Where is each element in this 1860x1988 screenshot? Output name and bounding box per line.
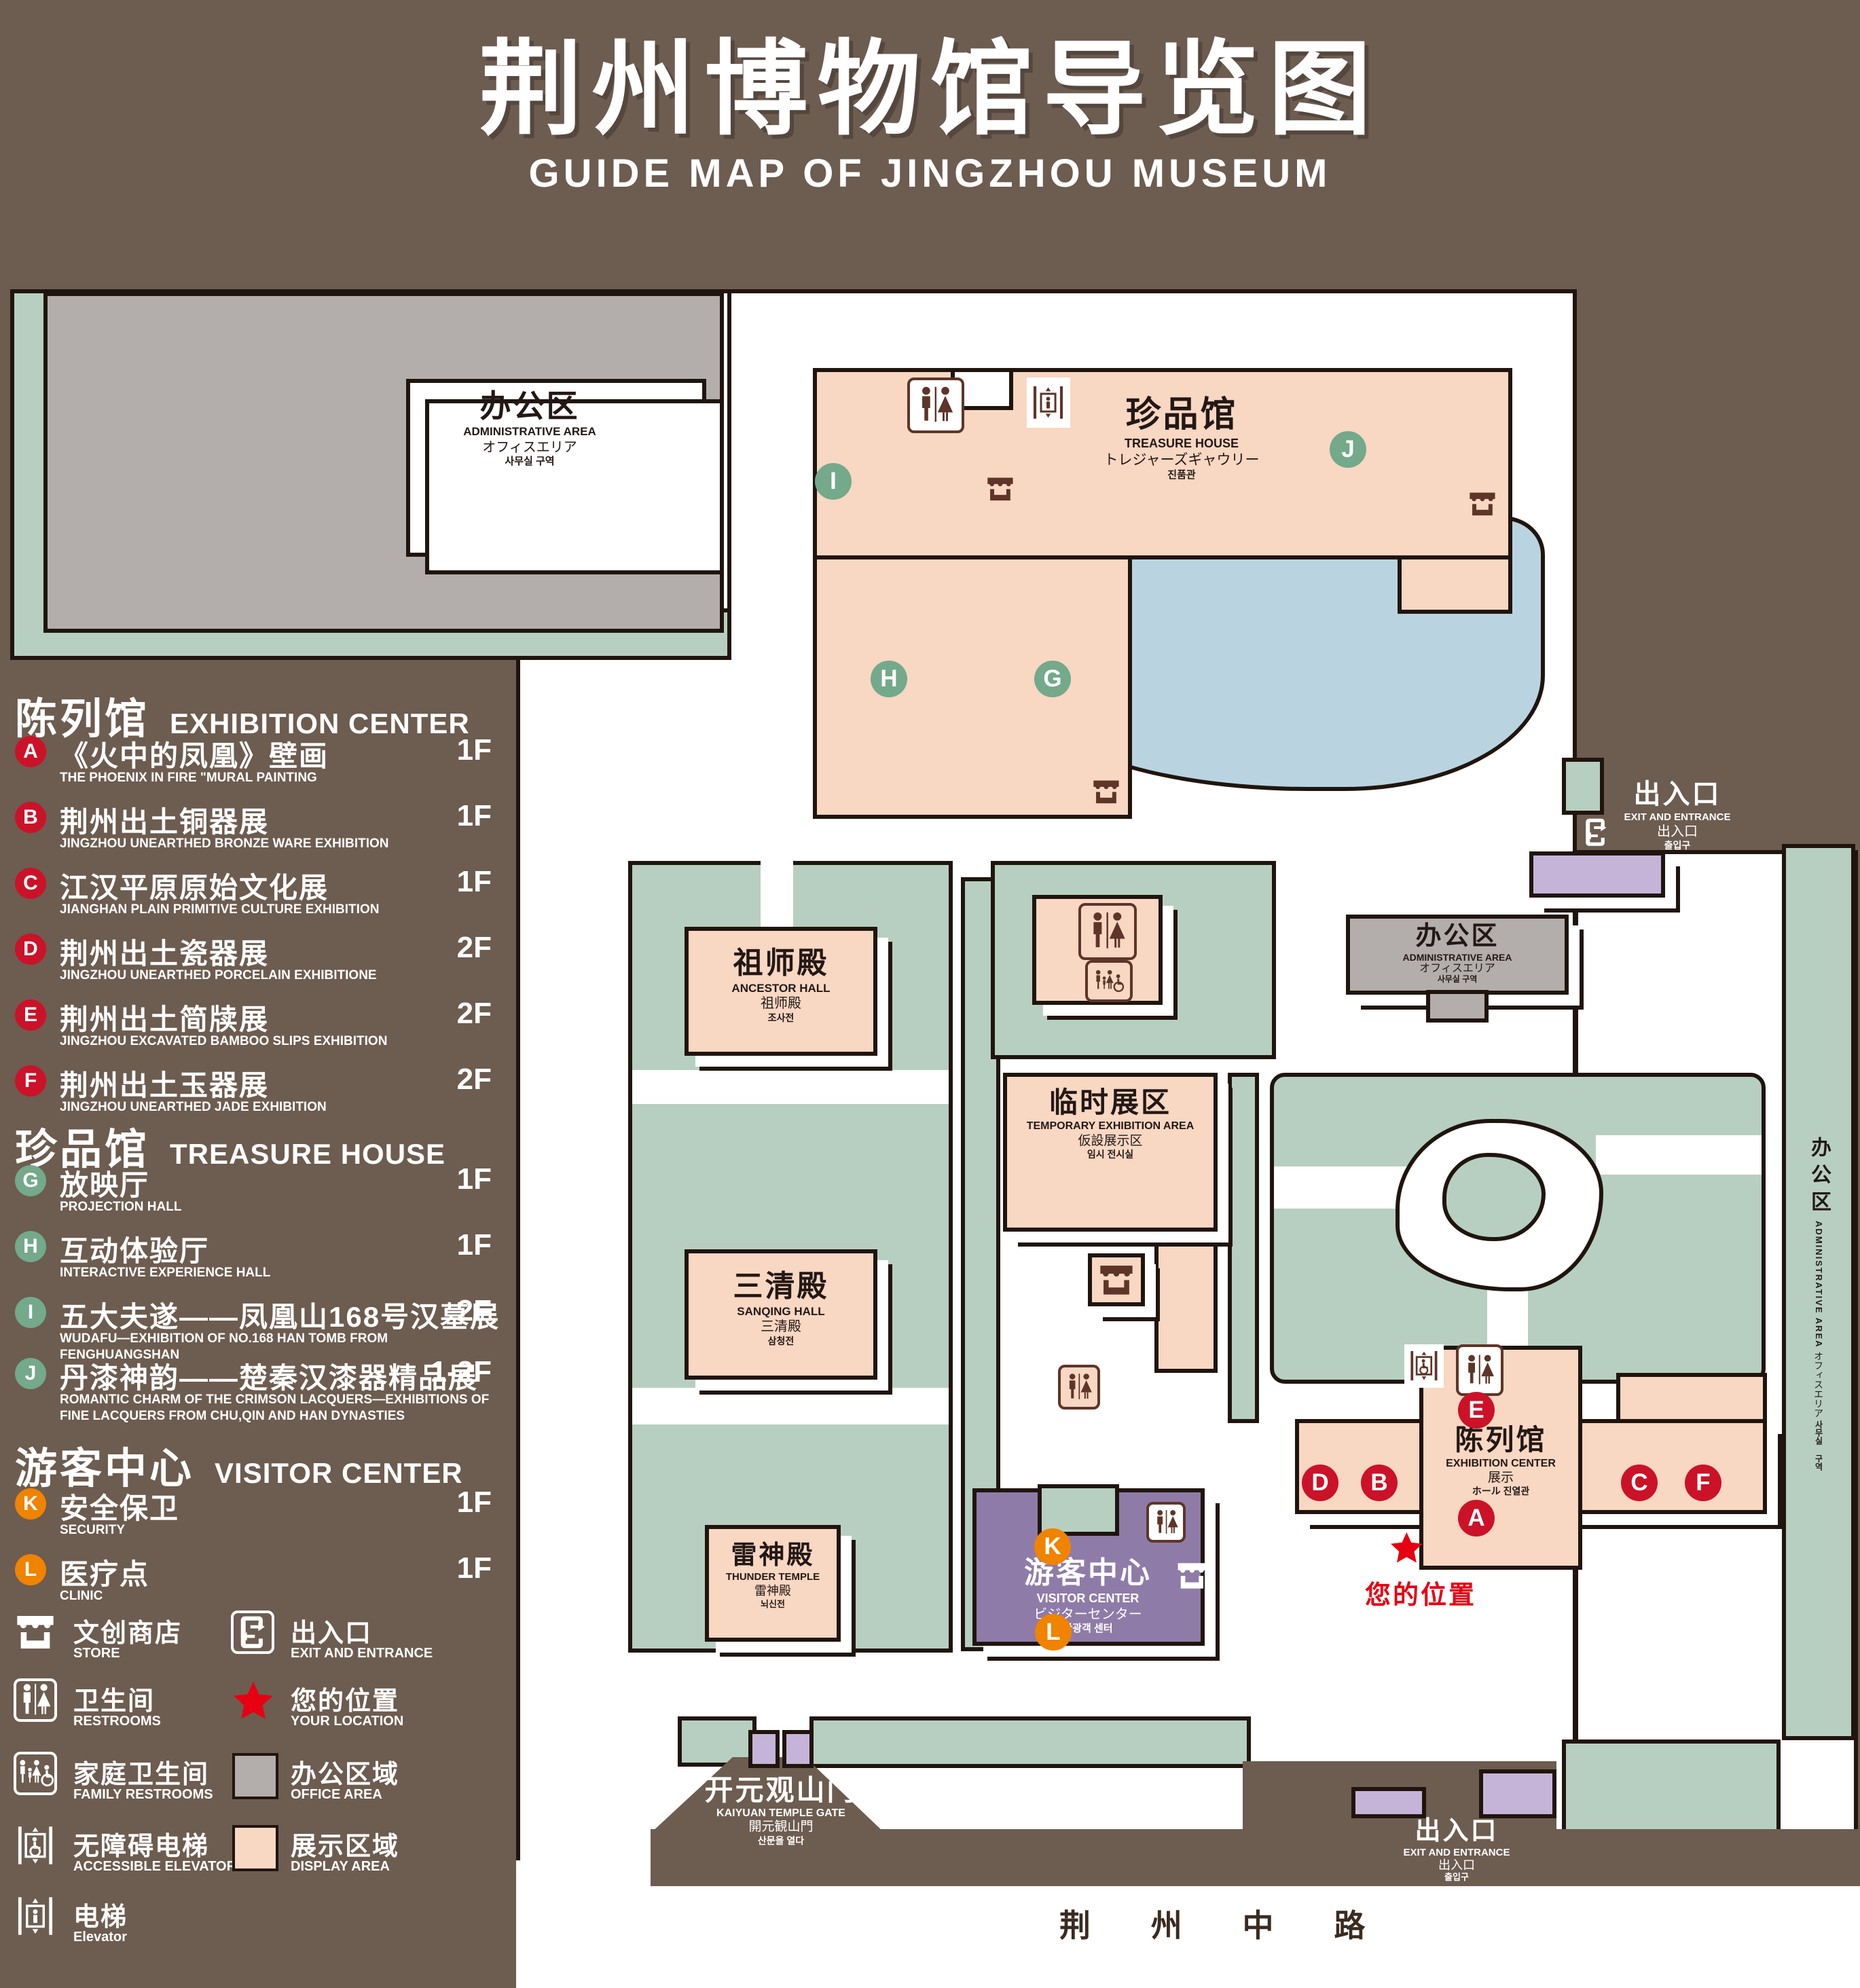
floor-label: 2F bbox=[457, 997, 492, 1031]
legend-badge-A: A bbox=[15, 736, 46, 767]
floor-label: 1-2F bbox=[431, 1355, 492, 1389]
wc-icon bbox=[1058, 1365, 1100, 1410]
map-marker-L[interactable]: L bbox=[1035, 1614, 1072, 1651]
wc-icon bbox=[1146, 1502, 1186, 1543]
exit-icon bbox=[1577, 812, 1615, 853]
legend-badge-F: F bbox=[15, 1065, 46, 1097]
temporary-exhibition-wing bbox=[1154, 1228, 1218, 1373]
floor-label: 2F bbox=[457, 931, 492, 965]
map-marker-K[interactable]: K bbox=[1034, 1528, 1071, 1565]
store-icon bbox=[1463, 486, 1502, 521]
legend-item-G[interactable]: G放映厅1FPROJECTION HALL bbox=[15, 1165, 504, 1230]
page-subtitle: GUIDE MAP OF JINGZHOU MUSEUM bbox=[0, 151, 1860, 196]
floor-label: 1F bbox=[457, 799, 492, 833]
visitor-center-label: 游客中心 VISITOR CENTER ビジターセンター 관광객 센터 bbox=[986, 1555, 1190, 1635]
legend-badge-K: K bbox=[15, 1488, 46, 1520]
road-name: 荆 州 中 路 bbox=[1059, 1901, 1391, 1946]
floor-label: 1F bbox=[457, 1551, 492, 1585]
admin-top-label: 办公区 ADMINISTRATIVE AREA オフィスエリア 사무실 구역 bbox=[380, 387, 679, 468]
store-icon bbox=[981, 471, 1020, 507]
halls-path-2 bbox=[632, 1388, 949, 1424]
map-marker-D[interactable]: D bbox=[1302, 1465, 1338, 1501]
treasure-house-step bbox=[1398, 551, 1512, 614]
floor-label: 1F bbox=[457, 865, 492, 899]
legend-badge-I: I bbox=[15, 1297, 46, 1328]
gate-pillar-right bbox=[782, 1730, 814, 1768]
temporary-exhibition-label: 临时展区 TEMPORARY EXHIBITION AREA 仮設展示区 임시 … bbox=[1003, 1085, 1218, 1160]
thunder-temple-label: 雷神殿 THUNDER TEMPLE 雷神殿 뇌신전 bbox=[691, 1540, 854, 1609]
exhibition-center-label: 陈列馆 EXHIBITION CENTER 展示 ホール 진열관 bbox=[1419, 1423, 1582, 1497]
your-location-text: 您的位置 bbox=[1365, 1574, 1476, 1611]
legend-item-K[interactable]: K安全保卫1FSECURITY bbox=[15, 1488, 504, 1553]
family-icon bbox=[1085, 960, 1133, 1002]
floor-label: 2F bbox=[457, 1294, 492, 1328]
legend-elev-row: 电梯Elevator bbox=[14, 1894, 217, 1955]
map-marker-B[interactable]: B bbox=[1361, 1465, 1398, 1501]
store-icon bbox=[1088, 1253, 1145, 1306]
halls-path-top bbox=[761, 857, 793, 929]
treasure-house-label: 珍品馆 TREASURE HOUSE トレジャーズギャウリー 진품관 bbox=[1046, 394, 1317, 481]
admin-strip-label: 办公区 ADMINISTRATIVE AREA オフィスエリア 사무실 구역 bbox=[1782, 1032, 1855, 1575]
store-icon bbox=[1087, 774, 1126, 809]
legend-item-C[interactable]: C江汉平原原始文化展1FJIANGHAN PLAIN PRIMITIVE CUL… bbox=[15, 868, 504, 933]
legend-accelev-row: 无障碍电梯ACCESSIBLE ELEVATOR bbox=[14, 1824, 217, 1885]
map-marker-F[interactable]: F bbox=[1685, 1465, 1721, 1501]
legend-item-F[interactable]: F荆州出土玉器展2FJINGZHOU UNEARTHED JADE EXHIBI… bbox=[15, 1065, 504, 1130]
map-marker-G[interactable]: G bbox=[1034, 661, 1071, 697]
legend-badge-J: J bbox=[15, 1358, 46, 1389]
floor-label: 1F bbox=[457, 1228, 492, 1262]
floor-label: 2F bbox=[457, 1063, 492, 1097]
legend-badge-D: D bbox=[15, 934, 46, 965]
legend-item-H[interactable]: H互动体验厅1FINTERACTIVE EXPERIENCE HALL bbox=[15, 1231, 504, 1296]
legend-star-row: 您的位置YOUR LOCATION bbox=[231, 1678, 448, 1739]
exhibition-center-right bbox=[1616, 1373, 1767, 1423]
legend-wc-row: 卫生间RESTROOMS bbox=[14, 1678, 217, 1739]
legend-office-row: 办公区域OFFICE AREA bbox=[231, 1752, 448, 1813]
map-marker-C[interactable]: C bbox=[1621, 1465, 1658, 1501]
gate-pillar-left bbox=[748, 1730, 780, 1768]
sanqing-hall-label: 三清殿 SANQING HALL 三清殿 삼청전 bbox=[685, 1268, 877, 1347]
legend-item-E[interactable]: E荆州出土简牍展2FJINGZHOU EXCAVATED BAMBOO SLIP… bbox=[15, 999, 504, 1065]
legend-item-D[interactable]: D荆州出土瓷器展2FJINGZHOU UNEARTHED PORCELAIN E… bbox=[15, 934, 504, 999]
legend-item-I[interactable]: I五大夫遂——凤凰山168号汉墓展2FWUDAFU—EXHIBITION OF … bbox=[15, 1297, 504, 1362]
wc-icon bbox=[907, 378, 964, 433]
exit-bottom-label: 出入口 EXIT AND ENTRANCE 出入口 출입구 bbox=[1379, 1817, 1535, 1883]
floor-label: 1F bbox=[457, 1486, 492, 1520]
map-marker-I[interactable]: I bbox=[815, 463, 852, 500]
legend-family-row: 家庭卫生间FAMILY RESTROOMS bbox=[14, 1752, 217, 1813]
ancestor-hall-label: 祖师殿 ANCESTOR HALL 祖师殿 조사전 bbox=[685, 945, 877, 1024]
gate-green-right bbox=[809, 1716, 1251, 1768]
legend-badge-G: G bbox=[15, 1165, 46, 1196]
floor-label: 1F bbox=[457, 1162, 492, 1196]
building-near-bottom-exit-1 bbox=[1351, 1787, 1426, 1818]
legend-badge-E: E bbox=[15, 999, 46, 1031]
temp-right-strip bbox=[1228, 1073, 1259, 1423]
legend-store-row: 文创商店STORE bbox=[14, 1610, 217, 1672]
legend-item-J[interactable]: J丹漆神韵——楚秦汉漆器精品展1-2FROMANTIC CHARM OF THE… bbox=[15, 1358, 504, 1423]
building-near-bottom-exit-2 bbox=[1479, 1769, 1556, 1818]
floor-label: 1F bbox=[457, 733, 492, 767]
legend-item-A[interactable]: A《火中的凤凰》壁画1FTHE PHOENIX IN FIRE "MURAL P… bbox=[15, 736, 504, 801]
park-path-e bbox=[1596, 1135, 1762, 1175]
building-near-top-exit bbox=[1529, 851, 1665, 898]
wc-icon bbox=[1456, 1344, 1503, 1396]
exit-top-label: 出入口 EXIT AND ENTRANCE 出入口 출입구 bbox=[1603, 778, 1752, 852]
legend-badge-B: B bbox=[15, 802, 46, 833]
legend-display-row: 展示区域DISPLAY AREA bbox=[231, 1824, 448, 1885]
page-title: 荆州博物馆导览图 bbox=[0, 5, 1860, 155]
map-marker-A[interactable]: A bbox=[1458, 1500, 1495, 1536]
legend-badge-C: C bbox=[15, 868, 46, 899]
treasure-house-left-wing[interactable] bbox=[813, 543, 1132, 819]
legend-exit-row: 出入口EXIT AND ENTRANCE bbox=[231, 1610, 448, 1672]
elev-icon bbox=[1027, 378, 1070, 428]
map-marker-H[interactable]: H bbox=[871, 661, 907, 697]
wc-icon bbox=[1078, 903, 1137, 960]
store-icon bbox=[1169, 1556, 1214, 1596]
legend-item-L[interactable]: L医疗点1FCLINIC bbox=[15, 1554, 504, 1619]
admin-right-label: 办公区 ADMINISTRATIVE AREA オフィスエリア 사무실 구역 bbox=[1346, 922, 1569, 984]
legend-badge-L: L bbox=[15, 1554, 46, 1585]
halls-path-1 bbox=[632, 1070, 949, 1104]
legend-item-B[interactable]: B荆州出土铜器展1FJINGZHOU UNEARTHED BRONZE WARE… bbox=[15, 802, 504, 867]
park-island bbox=[1442, 1153, 1546, 1241]
accelev-icon bbox=[1404, 1344, 1444, 1388]
corner-green-patch bbox=[1562, 758, 1604, 815]
legend-badge-H: H bbox=[15, 1231, 46, 1262]
your-location-star-icon bbox=[1384, 1526, 1429, 1571]
admin-right-tab bbox=[1426, 990, 1489, 1023]
gate-label: 开元观山门 KAIYUAN TEMPLE GATE 開元観山門 산문을 열다 bbox=[672, 1773, 890, 1846]
guide-map-page: 荆州博物馆导览图 GUIDE MAP OF JINGZHOU MUSEUM 办公… bbox=[0, 0, 1860, 1988]
map-marker-E[interactable]: E bbox=[1458, 1392, 1495, 1429]
map-marker-J[interactable]: J bbox=[1330, 431, 1366, 468]
